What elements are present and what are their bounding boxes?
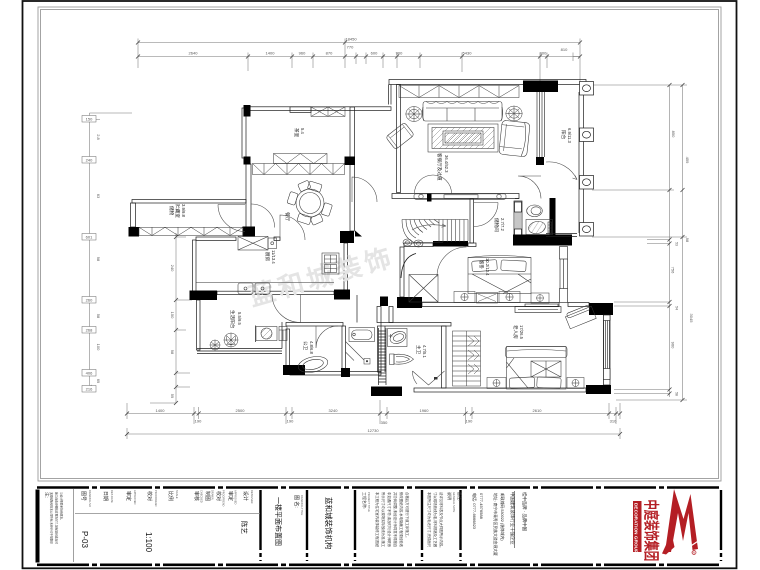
- svg-text:DRAWING TITLE: DRAWING TITLE: [300, 495, 304, 515]
- svg-text:GENERAL NOTE: GENERAL NOTE: [452, 492, 456, 512]
- svg-text:公卫: 公卫: [303, 341, 308, 351]
- svg-text:98: 98: [170, 350, 175, 355]
- svg-text:茶室: 茶室: [294, 128, 300, 138]
- svg-text:1400: 1400: [156, 408, 166, 413]
- svg-text:601: 601: [86, 235, 93, 240]
- svg-text:客餐厅及过道: 客餐厅及过道: [436, 153, 443, 181]
- svg-text:53: 53: [675, 242, 679, 246]
- svg-text:310: 310: [610, 419, 617, 424]
- svg-text:810: 810: [561, 47, 568, 52]
- svg-text:10.2/13.4: 10.2/13.4: [485, 258, 490, 276]
- svg-text:190: 190: [466, 419, 473, 424]
- svg-text:校对: 校对: [146, 491, 153, 501]
- svg-text:58: 58: [96, 314, 101, 319]
- svg-text:770: 770: [347, 45, 354, 50]
- svg-text:18450: 18450: [345, 37, 357, 42]
- svg-text:日期: 日期: [102, 491, 108, 501]
- svg-text:260: 260: [86, 298, 93, 303]
- svg-text:审定: 审定: [227, 491, 234, 501]
- svg-text:SCALE: SCALE: [175, 490, 179, 499]
- svg-text:蓝和城装饰机构: 蓝和城装饰机构: [324, 497, 334, 550]
- svg-text:PROJECT TITLE: PROJECT TITLE: [367, 492, 371, 512]
- svg-text:6.9/11.3: 6.9/11.3: [567, 128, 572, 143]
- svg-text:注:: 注:: [44, 492, 51, 498]
- svg-text:电话: 0777-6666823: 电话: 0777-6666823: [472, 493, 478, 530]
- svg-text:本图所注尺寸均为毛坯尺寸,完成面尺: 本图所注尺寸均为毛坯尺寸,完成面尺: [427, 492, 432, 548]
- svg-text:邮政编码:530022 (装饰城内): 邮政编码:530022 (装饰城内): [500, 493, 505, 541]
- svg-text:修改图纸内容,水电隐蔽工程须经验收: 修改图纸内容,水电隐蔽工程须经验收: [399, 492, 404, 548]
- svg-text:比例: 比例: [167, 491, 174, 501]
- svg-text:图 名:: 图 名:: [293, 495, 300, 508]
- svg-text:APPROVED: APPROVED: [133, 490, 137, 505]
- svg-text:69: 69: [96, 379, 101, 384]
- svg-text:DESIGNER: DESIGNER: [250, 490, 254, 504]
- svg-text:100: 100: [96, 344, 101, 351]
- svg-text:PROOFREAD: PROOFREAD: [154, 490, 158, 507]
- svg-text:900: 900: [540, 51, 547, 56]
- svg-text:54: 54: [675, 306, 679, 310]
- svg-text:阳台: 阳台: [560, 130, 567, 140]
- svg-text:63: 63: [96, 194, 101, 199]
- svg-text:并协商调整,未经设计师同意不得擅自: 并协商调整,未经设计师同意不得擅自: [393, 492, 398, 547]
- svg-text:190: 190: [287, 419, 294, 424]
- svg-text:4.8/6.8: 4.8/6.8: [309, 341, 314, 354]
- svg-text:主卫: 主卫: [416, 345, 422, 355]
- svg-text:216: 216: [86, 387, 93, 392]
- svg-text:3.9/9.8: 3.9/9.8: [181, 204, 186, 217]
- svg-text:36.4/52.3: 36.4/52.3: [444, 155, 449, 173]
- svg-text:本图纸版权归本公司所有,未经许可不得翻印: 本图纸版权归本公司所有,未经许可不得翻印: [50, 492, 54, 544]
- svg-text:960: 960: [671, 342, 676, 349]
- svg-text:0777-4576588: 0777-4576588: [479, 493, 484, 520]
- svg-text:图号: 图号: [80, 491, 86, 501]
- svg-text:CHECKED: CHECKED: [200, 490, 204, 503]
- svg-text:DES DATE: DES DATE: [110, 490, 114, 503]
- svg-text:1960: 1960: [420, 408, 430, 413]
- svg-text:58: 58: [675, 392, 679, 396]
- svg-text:地址: 南宁市青秀区民族大道金源大厦: 地址: 南宁市青秀区民族大道金源大厦: [493, 493, 498, 556]
- svg-text:240: 240: [170, 265, 175, 272]
- svg-text:756: 756: [671, 267, 676, 274]
- svg-text:98: 98: [685, 238, 690, 243]
- svg-text:客卧: 客卧: [478, 260, 485, 270]
- svg-text:法详见材料表及节点大样图所示内容。: 法详见材料表及节点大样图所示内容。: [439, 492, 444, 550]
- svg-text:DECORATION GROUP: DECORATION GROUP: [634, 503, 639, 553]
- svg-text:240: 240: [86, 158, 93, 163]
- svg-text:960: 960: [299, 51, 306, 56]
- svg-text:寸以现场放线为准,材料规格及工艺做: 寸以现场放线为准,材料规格及工艺做: [433, 492, 438, 548]
- svg-text:中国建筑装饰行业十强企业: 中国建筑装饰行业十强企业: [509, 492, 516, 545]
- svg-text:5.5/9.5: 5.5/9.5: [237, 312, 242, 325]
- svg-text:2.8: 2.8: [96, 134, 101, 140]
- svg-text:贮藏室: 贮藏室: [174, 204, 181, 218]
- svg-text:1400: 1400: [266, 51, 276, 56]
- svg-text:合格后方可进行下道工序施工。: 合格后方可进行下道工序施工。: [405, 492, 410, 539]
- svg-text:备注:: 备注:: [457, 492, 463, 501]
- svg-text:审定: 审定: [125, 491, 132, 501]
- svg-text:190: 190: [195, 419, 202, 424]
- svg-text:1:100: 1:100: [144, 532, 153, 553]
- svg-text:268: 268: [86, 328, 93, 333]
- svg-text:98: 98: [96, 257, 101, 262]
- svg-text:59: 59: [170, 394, 175, 399]
- svg-text:餐厅: 餐厅: [284, 212, 291, 222]
- svg-text:APPROVED: APPROVED: [234, 490, 238, 505]
- svg-text:2500: 2500: [236, 408, 246, 413]
- svg-text:桂中品牌 · 品牌中国: 桂中品牌 · 品牌中国: [521, 492, 528, 532]
- svg-text:设计: 设计: [242, 491, 249, 501]
- svg-text:3240: 3240: [329, 408, 339, 413]
- svg-text:中如遇尺寸不符,请及时与设计师联系: 中如遇尺寸不符,请及时与设计师联系: [387, 492, 392, 548]
- svg-text:17/26.5: 17/26.5: [519, 325, 524, 340]
- svg-text:600: 600: [371, 51, 378, 56]
- svg-text:2610: 2610: [533, 408, 543, 413]
- svg-text:生活阳台: 生活阳台: [229, 310, 236, 329]
- svg-text:DRAWING NO: DRAWING NO: [88, 490, 92, 507]
- svg-text:校对: 校对: [215, 491, 222, 501]
- svg-text:一楼平面布置图: 一楼平面布置图: [274, 497, 283, 546]
- svg-text:陈艺: 陈艺: [240, 521, 249, 535]
- svg-text:中庭装饰集团: 中庭装饰集团: [642, 500, 661, 562]
- svg-text:11/13.4: 11/13.4: [271, 250, 276, 264]
- svg-text:900: 900: [396, 51, 403, 56]
- svg-text:储物间: 储物间: [493, 218, 500, 232]
- svg-text:4.7/5.1: 4.7/5.1: [422, 345, 427, 358]
- svg-text:施工前请仔细核对现场尺寸,如有疑问请及时: 施工前请仔细核对现场尺寸,如有疑问请及时: [55, 492, 59, 544]
- svg-text:所示尺寸均以现场实际放线为准,施工: 所示尺寸均以现场实际放线为准,施工: [381, 492, 386, 548]
- svg-text:制图: 制图: [204, 491, 211, 501]
- svg-text:2.7/7.2: 2.7/7.2: [500, 218, 505, 231]
- svg-text:150: 150: [86, 117, 93, 122]
- svg-text:老人房: 老人房: [512, 325, 519, 339]
- svg-text:P-03: P-03: [80, 531, 89, 548]
- svg-text:本工程为住宅室内装饰装修工程,图纸: 本工程为住宅室内装饰装修工程,图纸: [375, 492, 380, 548]
- svg-text:2640: 2640: [189, 51, 199, 56]
- svg-text:与设计师联系协商解决。: 与设计师联系协商解决。: [60, 492, 64, 522]
- svg-text:350: 350: [381, 420, 388, 425]
- svg-text:PROOFREAD: PROOFREAD: [222, 490, 226, 507]
- svg-text:459: 459: [685, 157, 690, 164]
- svg-text:厨房: 厨房: [264, 252, 271, 262]
- svg-text:3045: 3045: [689, 314, 694, 324]
- svg-text:DRAWN: DRAWN: [211, 490, 215, 500]
- svg-text:储物: 储物: [168, 206, 175, 216]
- svg-text:150: 150: [170, 312, 175, 319]
- svg-text:406: 406: [86, 371, 93, 376]
- svg-text:12730: 12730: [367, 428, 379, 433]
- svg-text:5430: 5430: [463, 51, 473, 56]
- svg-text:5.4: 5.4: [300, 128, 305, 134]
- svg-text:审核: 审核: [193, 491, 200, 501]
- svg-text:850: 850: [671, 131, 676, 138]
- svg-text:870: 870: [326, 51, 333, 56]
